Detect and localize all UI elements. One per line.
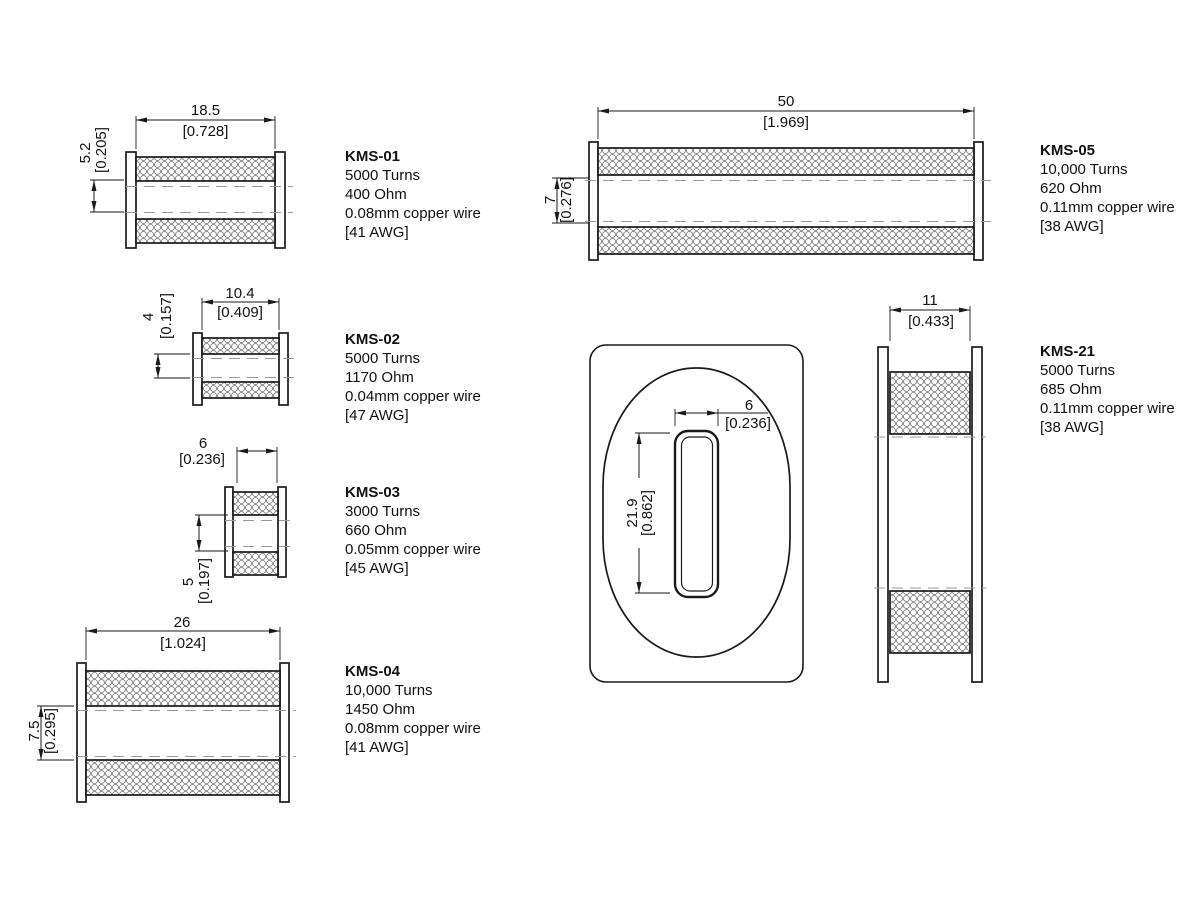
kms-03-spec-block: KMS-03 3000 Turns 660 Ohm 0.05mm copper …: [345, 484, 481, 577]
dim-height-mm: 4: [140, 313, 157, 321]
drawing-sheet: 18.5 [0.728] 5.2 [0.205] KMS-01 5000 Tur…: [0, 0, 1200, 900]
spec-turns: 5000 Turns: [1040, 362, 1115, 379]
dim-width-mm: 26: [174, 614, 191, 631]
dim-height-inch: [0.276]: [558, 177, 575, 223]
spec-resistance: 685 Ohm: [1040, 381, 1102, 398]
spec-resistance: 400 Ohm: [345, 186, 407, 203]
dim-width-inch: [0.728]: [183, 123, 229, 140]
bobbin-front-view: 6 [0.236] 21.9 [0.862]: [590, 345, 803, 682]
dim-width-inch: [1.024]: [160, 635, 206, 652]
left-flange: [193, 333, 202, 405]
top-winding-band: [86, 671, 280, 706]
width-dimension: 26 [1.024]: [86, 614, 280, 660]
dim-slot-width-mm: 6: [745, 397, 753, 414]
spec-wire: 0.08mm copper wire: [345, 205, 481, 222]
product-id: KMS-02: [345, 331, 400, 348]
bottom-winding-band: [598, 227, 974, 254]
bottom-winding-band: [202, 382, 279, 398]
kms-04-side-view: 26 [1.024] 7.5 [0.295]: [26, 614, 296, 802]
left-flange: [225, 487, 233, 577]
dim-width-inch: [0.433]: [908, 313, 954, 330]
height-dimension: 5 [0.197]: [180, 515, 228, 604]
kms-01-spec-block: KMS-01 5000 Turns 400 Ohm 0.08mm copper …: [345, 148, 481, 241]
left-flange: [77, 663, 86, 802]
spec-resistance: 1450 Ohm: [345, 701, 415, 718]
height-dimension: 4 [0.157]: [140, 293, 190, 378]
spec-awg: [38 AWG]: [1040, 218, 1104, 235]
spec-awg: [38 AWG]: [1040, 419, 1104, 436]
spec-wire: 0.11mm copper wire: [1040, 199, 1175, 216]
dim-height-inch: [0.157]: [158, 293, 175, 339]
spec-wire: 0.11mm copper wire: [1040, 400, 1175, 417]
dim-height-mm: 7: [542, 196, 559, 204]
kms-21-side-view: 11 [0.433]: [874, 292, 986, 682]
top-winding-band: [136, 157, 275, 181]
spec-awg: [41 AWG]: [345, 739, 409, 756]
width-dimension: 50 [1.969]: [598, 93, 974, 139]
right-flange: [974, 142, 983, 260]
left-flange: [126, 152, 136, 248]
dim-width-mm: 10.4: [225, 285, 254, 302]
kms-03-side-view: 6 [0.236] 5 [0.197]: [179, 435, 294, 604]
dim-width-inch: [1.969]: [763, 114, 809, 131]
left-flange: [589, 142, 598, 260]
spec-turns: 5000 Turns: [345, 350, 420, 367]
width-dimension: 10.4 [0.409]: [202, 285, 279, 330]
dim-width-inch: [0.236]: [179, 451, 225, 468]
right-flange: [972, 347, 982, 682]
dim-width-mm: 18.5: [191, 102, 220, 119]
spec-resistance: 660 Ohm: [345, 522, 407, 539]
bottom-winding-band: [233, 552, 278, 575]
flange-outline: [590, 345, 803, 682]
spec-turns: 10,000 Turns: [1040, 161, 1128, 178]
right-flange: [280, 663, 289, 802]
spec-awg: [45 AWG]: [345, 560, 409, 577]
width-dimension: 11 [0.433]: [890, 292, 970, 341]
right-flange: [279, 333, 288, 405]
kms-04-spec-block: KMS-04 10,000 Turns 1450 Ohm 0.08mm copp…: [345, 663, 481, 756]
spec-resistance: 1170 Ohm: [345, 369, 414, 386]
width-dimension: 18.5 [0.728]: [136, 102, 275, 149]
height-dimension: 7 [0.276]: [542, 177, 589, 223]
top-winding-band: [202, 338, 279, 354]
spec-awg: [47 AWG]: [345, 407, 409, 424]
spec-resistance: 620 Ohm: [1040, 180, 1102, 197]
bottom-winding-band: [86, 760, 280, 795]
spec-wire: 0.05mm copper wire: [345, 541, 481, 558]
kms-02-spec-block: KMS-02 5000 Turns 1170 Ohm 0.04mm copper…: [345, 331, 481, 424]
dim-width-mm: 11: [922, 292, 938, 309]
left-flange: [878, 347, 888, 682]
spec-wire: 0.04mm copper wire: [345, 388, 481, 405]
slot-width-dimension: 6 [0.236]: [675, 397, 771, 432]
height-dimension: 5.2 [0.205]: [77, 127, 124, 212]
spec-turns: 10,000 Turns: [345, 682, 433, 699]
dim-height-mm: 7.5: [26, 721, 43, 742]
spec-awg: [41 AWG]: [345, 224, 409, 241]
right-flange: [278, 487, 286, 577]
product-id: KMS-21: [1040, 343, 1095, 360]
product-id: KMS-01: [345, 148, 400, 165]
dim-height-mm: 5.2: [77, 143, 94, 164]
bottom-winding-band: [890, 591, 970, 653]
right-flange: [275, 152, 285, 248]
dim-height-inch: [0.295]: [42, 708, 59, 754]
product-id: KMS-04: [345, 663, 401, 680]
height-dimension: 7.5 [0.295]: [26, 706, 74, 760]
kms-05-side-view: 50 [1.969] 7 [0.276]: [542, 93, 991, 260]
spec-turns: 3000 Turns: [345, 503, 420, 520]
dim-slot-width-inch: [0.236]: [725, 415, 771, 432]
dim-height-mm: 5: [180, 578, 197, 586]
top-winding-band: [598, 148, 974, 175]
dim-height-inch: [0.205]: [93, 127, 110, 173]
kms-01-side-view: 18.5 [0.728] 5.2 [0.205]: [77, 102, 293, 248]
dim-width-mm: 50: [778, 93, 795, 110]
kms-02-side-view: 10.4 [0.409] 4 [0.157]: [140, 285, 296, 405]
product-id: KMS-05: [1040, 142, 1095, 159]
kms-21-spec-block: KMS-21 5000 Turns 685 Ohm 0.11mm copper …: [1040, 343, 1175, 436]
width-dimension: 6 [0.236]: [179, 435, 277, 483]
top-winding-band: [890, 372, 970, 434]
core-slot-inner: [682, 437, 713, 591]
dim-width-mm: 6: [199, 435, 207, 452]
slot-height-dimension: 21.9 [0.862]: [624, 433, 670, 593]
spec-wire: 0.08mm copper wire: [345, 720, 481, 737]
coil-bobbin-spec-drawing: 18.5 [0.728] 5.2 [0.205] KMS-01 5000 Tur…: [0, 0, 1200, 900]
top-winding-band: [233, 492, 278, 515]
bottom-winding-band: [136, 219, 275, 243]
dim-width-inch: [0.409]: [217, 304, 263, 321]
kms-05-spec-block: KMS-05 10,000 Turns 620 Ohm 0.11mm coppe…: [1040, 142, 1175, 235]
dim-slot-height-inch: [0.862]: [639, 490, 656, 536]
product-id: KMS-03: [345, 484, 400, 501]
dim-height-inch: [0.197]: [196, 558, 213, 604]
spec-turns: 5000 Turns: [345, 167, 420, 184]
